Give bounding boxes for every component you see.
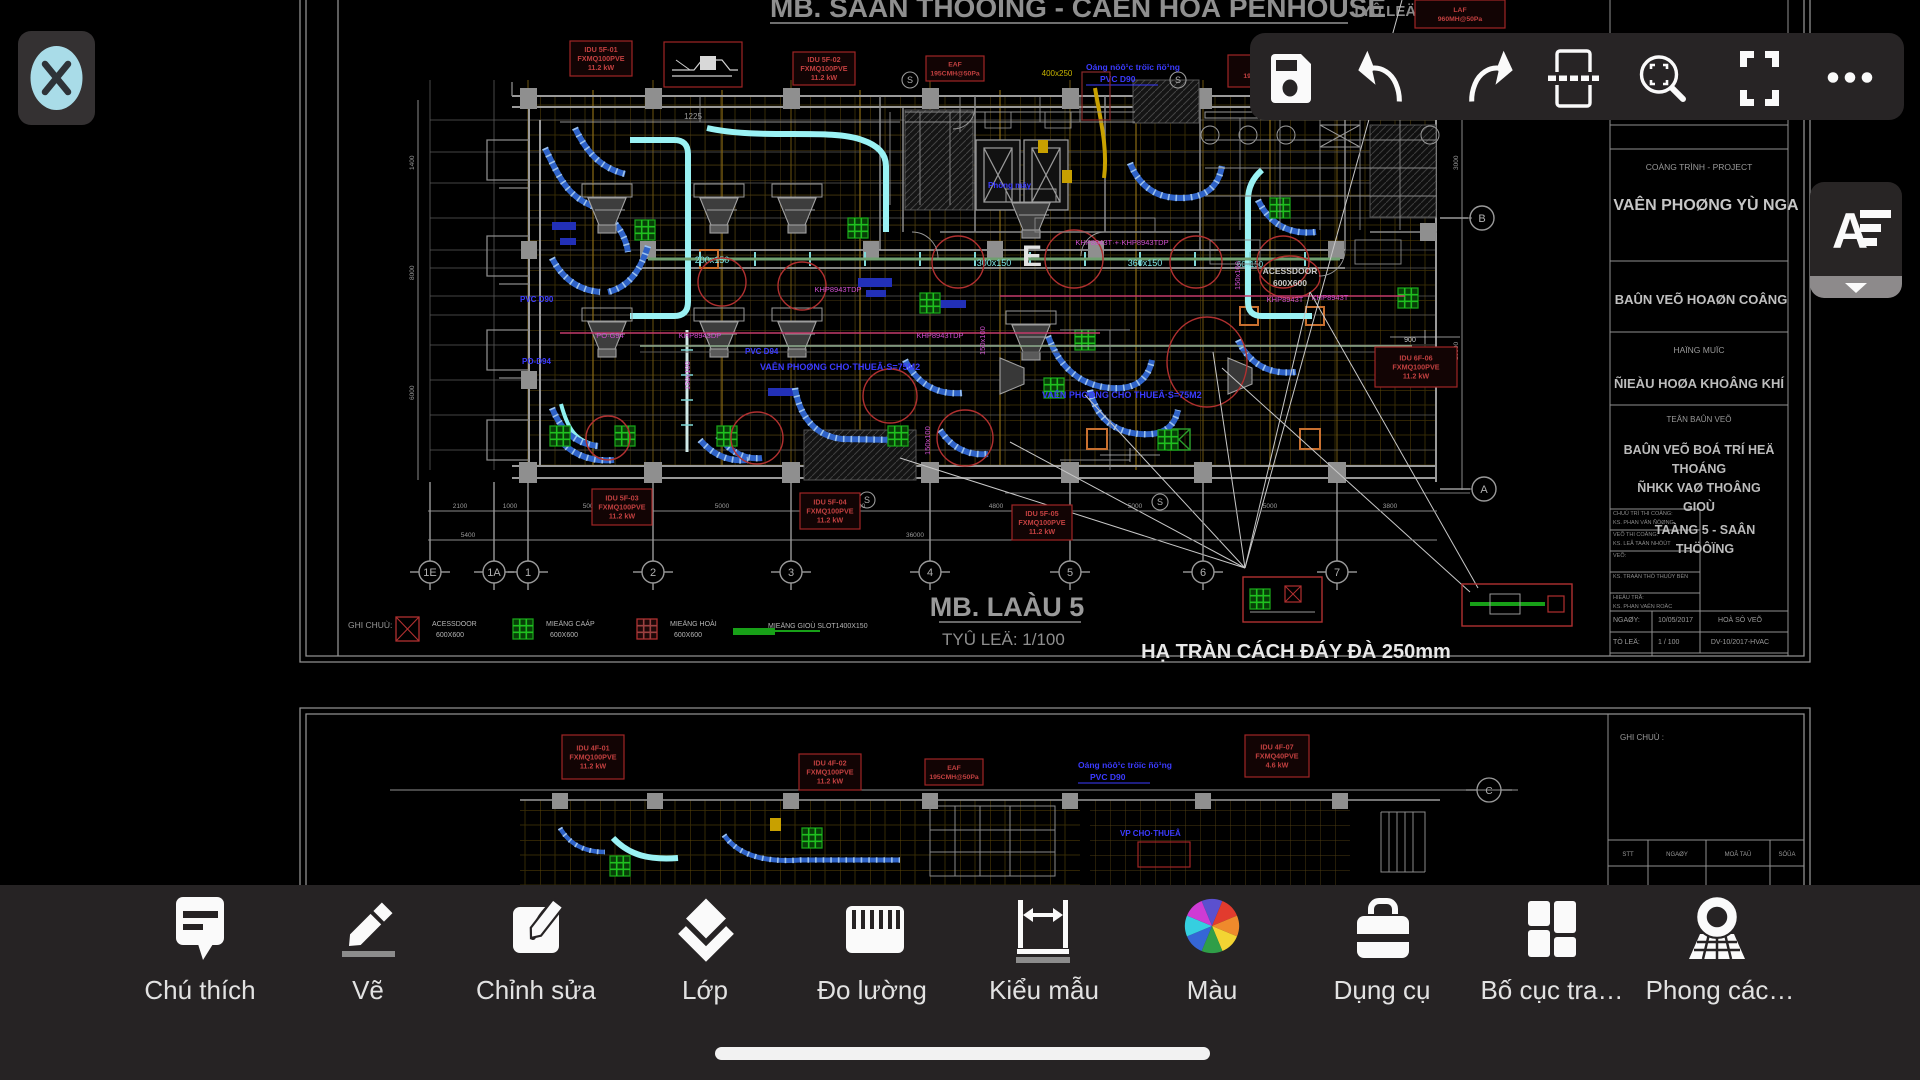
svg-text:IDU 4F-01: IDU 4F-01 <box>576 743 609 752</box>
svg-text:FXMQ40PVE: FXMQ40PVE <box>1255 752 1298 761</box>
svg-text:PVC D90: PVC D90 <box>520 295 554 304</box>
svg-text:IDU 5F-05: IDU 5F-05 <box>1025 509 1058 518</box>
svg-text:5000: 5000 <box>715 503 730 510</box>
svg-text:36000: 36000 <box>906 532 924 539</box>
svg-text:DV-10/2017-HVAC: DV-10/2017-HVAC <box>1711 639 1769 646</box>
svg-text:360x150: 360x150 <box>1128 258 1163 268</box>
svg-text:EAF: EAF <box>947 765 961 772</box>
svg-text:IDU 4F-07: IDU 4F-07 <box>1260 742 1293 751</box>
svg-text:ACESSDOOR: ACESSDOOR <box>432 621 477 628</box>
svg-text:THOÁNG: THOÁNG <box>1672 461 1726 476</box>
svg-text:B: B <box>1478 213 1485 225</box>
svg-text:HAÏNG MUÏC: HAÏNG MUÏC <box>1674 345 1725 355</box>
svg-text:400x250: 400x250 <box>1042 69 1073 78</box>
svg-text:960MH@50Pa: 960MH@50Pa <box>1438 16 1483 23</box>
svg-text:KHP8943T: KHP8943T <box>1267 295 1304 304</box>
svg-text:HOÀ SÔ VEÕ: HOÀ SÔ VEÕ <box>1718 615 1763 624</box>
svg-text:600X600: 600X600 <box>550 632 578 639</box>
svg-text:C: C <box>1485 786 1492 797</box>
svg-text:8000: 8000 <box>409 265 416 280</box>
svg-text:150x100: 150x100 <box>1233 261 1242 290</box>
svg-text:KS. LEA̐ TAÁN NHÖÙT: KS. LEA̐ TAÁN NHÖÙT <box>1613 539 1671 547</box>
svg-text:11.2 kW: 11.2 kW <box>1029 527 1056 536</box>
svg-text:THÖÔÏNG: THÖÔÏNG <box>1676 541 1734 556</box>
svg-text:MB. SAÂN THÖÔÏNG - CAÊN HOÄ PE: MB. SAÂN THÖÔÏNG - CAÊN HOÄ PENHOUSE <box>770 0 1386 23</box>
svg-text:ÑHKK VAØ THOÂNG: ÑHKK VAØ THOÂNG <box>1637 480 1760 495</box>
svg-text:5: 5 <box>1067 567 1073 579</box>
svg-text:IDU 5F-02: IDU 5F-02 <box>807 55 840 64</box>
svg-text:S: S <box>907 75 913 85</box>
svg-text:IDU 5F-01: IDU 5F-01 <box>584 45 617 54</box>
svg-text:S: S <box>1157 497 1163 507</box>
svg-text:600X600: 600X600 <box>436 632 464 639</box>
svg-text:MOÂ TAÛ: MOÂ TAÛ <box>1725 851 1752 858</box>
svg-text:TÒ LEÄ:: TÒ LEÄ: <box>1613 637 1640 646</box>
svg-text:6000: 6000 <box>409 385 416 400</box>
svg-text:600X600: 600X600 <box>1273 278 1307 288</box>
svg-text:1 / 100: 1 / 100 <box>1658 639 1680 646</box>
svg-text:KS. TRAÀN THÒ THUÙY BÈN: KS. TRAÀN THÒ THUÙY BÈN <box>1613 573 1688 580</box>
svg-text:COÀNG TRÌNH - PROJECT: COÀNG TRÌNH - PROJECT <box>1646 162 1753 172</box>
svg-text:KHP8943T: KHP8943T <box>1312 293 1349 302</box>
svg-text:2100: 2100 <box>453 503 468 510</box>
svg-text:PVC D90: PVC D90 <box>1100 74 1136 84</box>
svg-text:VAÊN PHOØNG CHO THUEÂ·S=75M2: VAÊN PHOØNG CHO THUEÂ·S=75M2 <box>1042 389 1202 400</box>
svg-text:3800: 3800 <box>1383 503 1398 510</box>
svg-text:1A: 1A <box>487 567 501 579</box>
svg-text:KHP8943TDP: KHP8943TDP <box>814 285 861 294</box>
svg-text:1E: 1E <box>423 567 436 579</box>
svg-text:IDU 4F-02: IDU 4F-02 <box>813 758 846 767</box>
svg-text:FXMQ100PVE: FXMQ100PVE <box>1392 363 1439 372</box>
svg-text:5000: 5000 <box>1128 503 1143 510</box>
svg-text:4: 4 <box>927 567 933 579</box>
svg-text:FXMQ100PVE: FXMQ100PVE <box>598 503 645 512</box>
svg-text:1225: 1225 <box>684 112 702 121</box>
svg-text:10/05/2017: 10/05/2017 <box>1658 617 1693 624</box>
svg-text:KHP8943DP: KHP8943DP <box>679 331 722 340</box>
svg-text:PVC D94: PVC D94 <box>745 347 779 356</box>
svg-text:Oáng nöô¹c tröïc ñö¹ng: Oáng nöô¹c tröïc ñö¹ng <box>1086 62 1180 72</box>
svg-text:300x150: 300x150 <box>977 258 1012 268</box>
svg-text:FXMQ100PVE: FXMQ100PVE <box>569 753 616 762</box>
svg-text:IDU 5F-03: IDU 5F-03 <box>605 493 638 502</box>
svg-text:150x100: 150x100 <box>683 361 692 390</box>
svg-text:11.2 kW: 11.2 kW <box>817 777 844 786</box>
svg-text:ÑIEÀU HOØA KHOÂNG KHÍ: ÑIEÀU HOØA KHOÂNG KHÍ <box>1614 376 1784 391</box>
svg-text:VAÊN PHOØNG CHO·THUEÂ·S=75M2: VAÊN PHOØNG CHO·THUEÂ·S=75M2 <box>760 361 920 372</box>
svg-text:195CMH@50Pa: 195CMH@50Pa <box>930 71 980 78</box>
svg-text:1: 1 <box>525 567 531 579</box>
svg-text:KHP8943TDP: KHP8943TDP <box>916 331 963 340</box>
svg-text:2: 2 <box>650 567 656 579</box>
svg-text:MB. LAÀU 5: MB. LAÀU 5 <box>930 591 1085 622</box>
svg-text:Phòng máy: Phòng máy <box>988 181 1032 190</box>
svg-text:1400: 1400 <box>409 155 416 170</box>
svg-text:GHI CHUÙ :: GHI CHUÙ : <box>1620 733 1664 742</box>
svg-text:3: 3 <box>788 567 794 579</box>
svg-text:11.2 kW: 11.2 kW <box>580 762 607 771</box>
svg-text:ACESSDOOR: ACESSDOOR <box>1263 266 1318 276</box>
svg-text:FXMQ100PVE: FXMQ100PVE <box>806 507 853 516</box>
svg-text:7: 7 <box>1334 567 1340 579</box>
svg-text:IDU 5F-04: IDU 5F-04 <box>813 497 846 506</box>
svg-text:GHI CHUÙ:: GHI CHUÙ: <box>348 620 392 630</box>
svg-text:STT: STT <box>1622 852 1634 858</box>
svg-text:NGAØY:: NGAØY: <box>1613 617 1640 624</box>
svg-text:4.6 kW: 4.6 kW <box>1266 761 1289 770</box>
svg-text:150x100: 150x100 <box>923 426 932 455</box>
svg-text:E: E <box>1022 240 1042 273</box>
svg-text:HẠ TRÀN CÁCH ÐÁY ÐÀ 250mm: HẠ TRÀN CÁCH ÐÁY ÐÀ 250mm <box>1141 640 1451 663</box>
svg-text:MIEÄNG HOÀI: MIEÄNG HOÀI <box>670 619 717 628</box>
svg-text:FXMQ100PVE: FXMQ100PVE <box>1018 518 1065 527</box>
svg-text:PVC D90: PVC D90 <box>1090 772 1126 782</box>
svg-text:MIEÄNG GIOÙ SLOT1400X150: MIEÄNG GIOÙ SLOT1400X150 <box>768 621 868 630</box>
svg-text:3000: 3000 <box>1453 155 1460 170</box>
svg-text:TEÂN BAÛN VEÕ: TEÂN BAÛN VEÕ <box>1667 415 1732 424</box>
svg-text:PO-D94: PO-D94 <box>522 357 551 366</box>
svg-text:IDU 6F-06: IDU 6F-06 <box>1399 353 1432 362</box>
svg-text:GIOÙ: GIOÙ <box>1683 499 1715 514</box>
svg-text:KS. PHAN VAÊN ROÄC: KS. PHAN VAÊN ROÄC <box>1613 602 1672 610</box>
svg-text:Oáng nöô¹c tröïc ñö¹ng: Oáng nöô¹c tröïc ñö¹ng <box>1078 760 1172 770</box>
svg-text:5400: 5400 <box>461 532 476 539</box>
svg-text:KHP8943T·+·KHP8943TDP: KHP8943T·+·KHP8943TDP <box>1075 238 1168 247</box>
svg-text:CHUÙ TRÌ THI COÂNG:: CHUÙ TRÌ THI COÂNG: <box>1613 510 1673 517</box>
svg-text:FXMQ100PVE: FXMQ100PVE <box>800 64 847 73</box>
svg-text:11.2 kW: 11.2 kW <box>1403 372 1430 381</box>
svg-text:TYÛ LEÄ: 1/100: TYÛ LEÄ: 1/100 <box>942 630 1065 649</box>
svg-text:150x100: 150x100 <box>978 326 987 355</box>
svg-text:11.2 kW: 11.2 kW <box>609 512 636 521</box>
svg-text:11.2 kW: 11.2 kW <box>817 516 844 525</box>
svg-text:VEÕ:: VEÕ: <box>1613 552 1627 559</box>
svg-text:5000: 5000 <box>1263 503 1278 510</box>
svg-text:A: A <box>1480 484 1488 496</box>
svg-text:195CMH@50Pa: 195CMH@50Pa <box>929 774 979 781</box>
svg-text:S: S <box>864 495 870 505</box>
svg-text:NGAØY: NGAØY <box>1666 852 1688 858</box>
svg-text:LAF: LAF <box>1453 7 1466 14</box>
svg-text:11.2 kW: 11.2 kW <box>811 73 838 82</box>
svg-text:4800: 4800 <box>989 503 1004 510</box>
svg-text:FXMQ100PVE: FXMQ100PVE <box>577 54 624 63</box>
svg-text:900: 900 <box>1404 337 1416 344</box>
svg-text:FXMQ100PVE: FXMQ100PVE <box>806 768 853 777</box>
svg-text:BAÛN VEÕ BOÁ TRÍ HEÄ: BAÛN VEÕ BOÁ TRÍ HEÄ <box>1624 442 1775 457</box>
svg-text:VEÕ THI COÂNG:: VEÕ THI COÂNG: <box>1613 531 1659 538</box>
svg-text:VAÊN PHOØNG YÙ NGA: VAÊN PHOØNG YÙ NGA <box>1613 195 1799 214</box>
svg-text:MIEÄNG CAÁP: MIEÄNG CAÁP <box>546 619 595 628</box>
svg-text:6: 6 <box>1200 567 1206 579</box>
svg-text:SÖÛA: SÖÛA <box>1778 851 1795 858</box>
svg-text:600X600: 600X600 <box>674 632 702 639</box>
svg-text:PO·G94: PO·G94 <box>596 331 624 340</box>
svg-text:KS. PHAN VÄN ÑÖØNG: KS. PHAN VÄN ÑÖØNG <box>1613 519 1674 526</box>
svg-text:1000: 1000 <box>503 503 518 510</box>
svg-text:VP CHO·THUEÂ: VP CHO·THUEÂ <box>1120 829 1181 838</box>
svg-text:11.2 kW: 11.2 kW <box>588 63 615 72</box>
svg-text:S: S <box>1175 75 1181 85</box>
svg-text:EAF: EAF <box>948 61 962 68</box>
svg-text:BAÛN VEÕ HOAØN COÂNG: BAÛN VEÕ HOAØN COÂNG <box>1615 292 1788 307</box>
svg-text:HIEÄU TRÃ:: HIEÄU TRÃ: <box>1613 594 1644 601</box>
